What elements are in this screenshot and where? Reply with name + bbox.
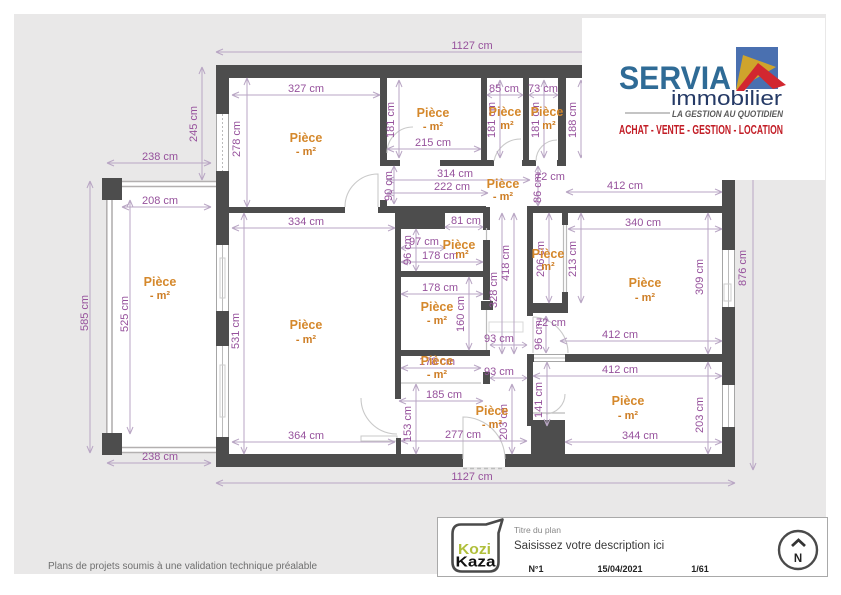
svg-text:Plans de projets soumis à une: Plans de projets soumis à une validation… (48, 561, 318, 572)
svg-text:245 cm: 245 cm (188, 106, 200, 142)
svg-text:Saisissez votre description ic: Saisissez votre description ici (514, 540, 664, 552)
svg-text:328 cm: 328 cm (488, 272, 500, 308)
svg-text:238 cm: 238 cm (142, 451, 178, 463)
svg-text:327 cm: 327 cm (288, 83, 324, 95)
svg-text:141 cm: 141 cm (533, 382, 545, 418)
svg-text:Pièce: Pièce (612, 394, 645, 408)
svg-text:Pièce: Pièce (417, 106, 450, 120)
svg-text:LA GESTION AU QUOTIDIEN: LA GESTION AU QUOTIDIEN (672, 109, 784, 120)
svg-text:876 cm: 876 cm (737, 250, 749, 286)
svg-text:412 cm: 412 cm (607, 180, 643, 192)
svg-text:m²: m² (455, 249, 469, 261)
svg-text:Pièce: Pièce (421, 354, 454, 368)
svg-text:1127 cm: 1127 cm (451, 40, 492, 52)
svg-text:412 cm: 412 cm (602, 364, 638, 376)
svg-text:160 cm: 160 cm (455, 296, 467, 332)
svg-text:188 cm: 188 cm (567, 102, 579, 138)
svg-text:181 cm: 181 cm (385, 102, 397, 138)
svg-text:- m²: - m² (296, 334, 317, 346)
svg-text:m²: m² (500, 120, 514, 132)
svg-text:1/61: 1/61 (691, 564, 709, 574)
svg-text:1127 cm: 1127 cm (451, 471, 492, 483)
svg-text:N°1: N°1 (528, 564, 543, 574)
svg-text:418 cm: 418 cm (500, 245, 512, 281)
svg-text:278 cm: 278 cm (231, 121, 243, 157)
svg-text:15/04/2021: 15/04/2021 (597, 564, 642, 574)
svg-text:Pièce: Pièce (487, 177, 520, 191)
svg-text:185 cm: 185 cm (426, 389, 462, 401)
svg-text:- m²: - m² (635, 292, 656, 304)
svg-text:85 cm: 85 cm (489, 83, 519, 95)
svg-text:Pièce: Pièce (290, 318, 323, 332)
svg-text:93 cm: 93 cm (484, 366, 514, 378)
svg-text:238 cm: 238 cm (142, 151, 178, 163)
svg-text:96 cm: 96 cm (533, 320, 545, 350)
svg-text:213 cm: 213 cm (567, 241, 579, 277)
svg-text:340 cm: 340 cm (625, 217, 661, 229)
svg-text:Titre du plan: Titre du plan (514, 525, 561, 535)
svg-text:334 cm: 334 cm (288, 216, 324, 228)
svg-text:Pièce: Pièce (421, 300, 454, 314)
svg-text:525 cm: 525 cm (119, 296, 131, 332)
svg-text:178 cm: 178 cm (422, 282, 458, 294)
svg-text:203 cm: 203 cm (694, 397, 706, 433)
svg-text:Pièce: Pièce (476, 404, 509, 418)
svg-text:215 cm: 215 cm (415, 137, 451, 149)
svg-text:- m²: - m² (618, 410, 639, 422)
svg-text:73 cm: 73 cm (528, 83, 558, 95)
svg-text:277 cm: 277 cm (445, 429, 481, 441)
svg-text:Pièce: Pièce (144, 275, 177, 289)
svg-text:ACHAT - VENTE - GESTION - LOCA: ACHAT - VENTE - GESTION - LOCATION (619, 123, 783, 137)
svg-text:- m²: - m² (427, 315, 448, 327)
svg-text:531 cm: 531 cm (230, 313, 242, 349)
svg-text:- m²: - m² (150, 290, 171, 302)
svg-text:314 cm: 314 cm (437, 168, 473, 180)
svg-text:- m²: - m² (427, 369, 448, 381)
svg-text:364 cm: 364 cm (288, 430, 324, 442)
svg-text:86 cm: 86 cm (532, 173, 544, 203)
svg-text:N: N (794, 553, 802, 565)
svg-text:309 cm: 309 cm (694, 259, 706, 295)
svg-text:Pièce: Pièce (531, 105, 564, 119)
svg-text:m²: m² (541, 261, 555, 273)
svg-text:90 cm: 90 cm (383, 171, 395, 201)
svg-text:- m²: - m² (493, 191, 514, 203)
svg-text:immobilier: immobilier (671, 88, 782, 110)
svg-text:- m²: - m² (423, 121, 444, 133)
svg-text:412 cm: 412 cm (602, 329, 638, 341)
svg-text:Pièce: Pièce (629, 276, 662, 290)
svg-text:344 cm: 344 cm (622, 430, 658, 442)
svg-text:96 cm: 96 cm (402, 235, 414, 265)
svg-text:- m²: - m² (482, 419, 503, 431)
svg-text:222 cm: 222 cm (434, 181, 470, 193)
svg-text:81 cm: 81 cm (451, 215, 481, 227)
svg-text:Pièce: Pièce (290, 131, 323, 145)
svg-text:585 cm: 585 cm (79, 295, 91, 331)
svg-text:m²: m² (542, 120, 556, 132)
svg-text:93 cm: 93 cm (484, 333, 514, 345)
svg-text:153 cm: 153 cm (402, 406, 414, 442)
svg-text:Pièce: Pièce (532, 247, 565, 261)
svg-text:Pièce: Pièce (489, 105, 522, 119)
svg-text:Kaza: Kaza (456, 555, 497, 571)
svg-text:208 cm: 208 cm (142, 195, 178, 207)
svg-text:- m²: - m² (296, 146, 317, 158)
